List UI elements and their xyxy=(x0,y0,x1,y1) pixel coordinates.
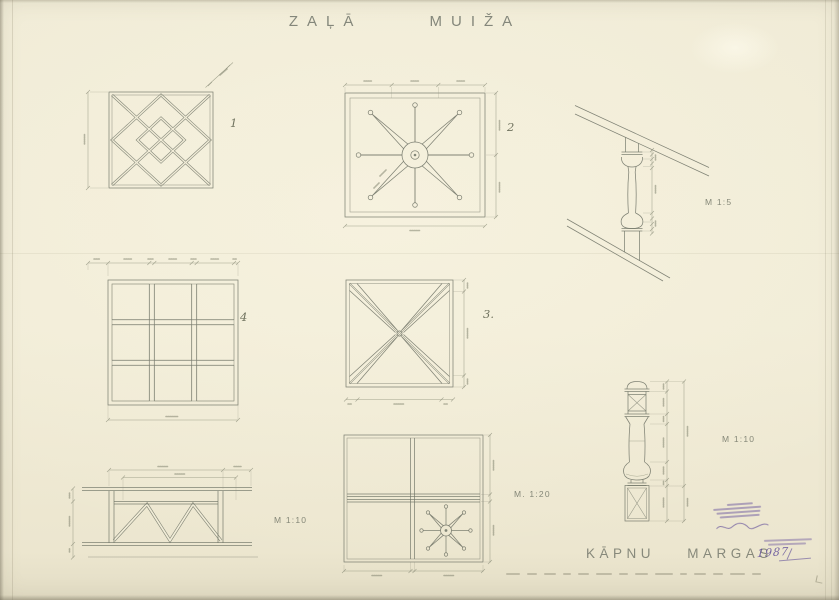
sheet-title: ZAĻĀ MUIŽA xyxy=(240,13,570,30)
scale-label-elevation: M 1:10 xyxy=(274,515,307,525)
sheet-subtitle: KĀPNU MARGAS xyxy=(586,546,773,561)
baluster-dimensions xyxy=(643,148,656,236)
scale-label-grid: M. 1:20 xyxy=(514,489,551,499)
grid-dimensions xyxy=(342,433,494,576)
newel-dimensions xyxy=(650,380,688,524)
railing-elevation-drawing xyxy=(70,467,259,560)
illegible-pencil-note xyxy=(506,573,814,575)
drawing-sheet: ZAĻĀ MUIŽA KĀPNU MARGAS 1 2 3. 4 M 1:5 M… xyxy=(0,0,839,600)
panel-2-number: 2 xyxy=(507,120,514,134)
scale-label-newel: M 1:10 xyxy=(722,434,755,444)
panel-1-number: 1 xyxy=(230,116,237,130)
baluster-detail-drawing xyxy=(567,106,709,282)
grid-panel-drawing xyxy=(342,433,494,576)
panel-3-diagonal-drawing xyxy=(344,278,468,404)
newel-post-drawing xyxy=(623,380,687,524)
ink-stamp-large xyxy=(713,501,771,539)
scale-label-baluster: M 1:5 xyxy=(705,197,732,207)
grid-star xyxy=(420,505,472,556)
stamp-handwritten-number: 1987 xyxy=(757,545,790,560)
panel-1-dimensions xyxy=(85,63,234,191)
corner-pencil-mark xyxy=(815,575,823,583)
panel-3-number: 3. xyxy=(483,307,494,321)
panel-4-dimensions xyxy=(86,259,240,422)
stamp-signature-squiggle xyxy=(714,517,771,535)
panel-4-number: 4 xyxy=(240,310,247,324)
panel-1-lattice-drawing xyxy=(85,63,234,191)
panel-4-wood-panels-drawing xyxy=(86,259,240,422)
panel-2-star-drawing xyxy=(343,81,500,231)
